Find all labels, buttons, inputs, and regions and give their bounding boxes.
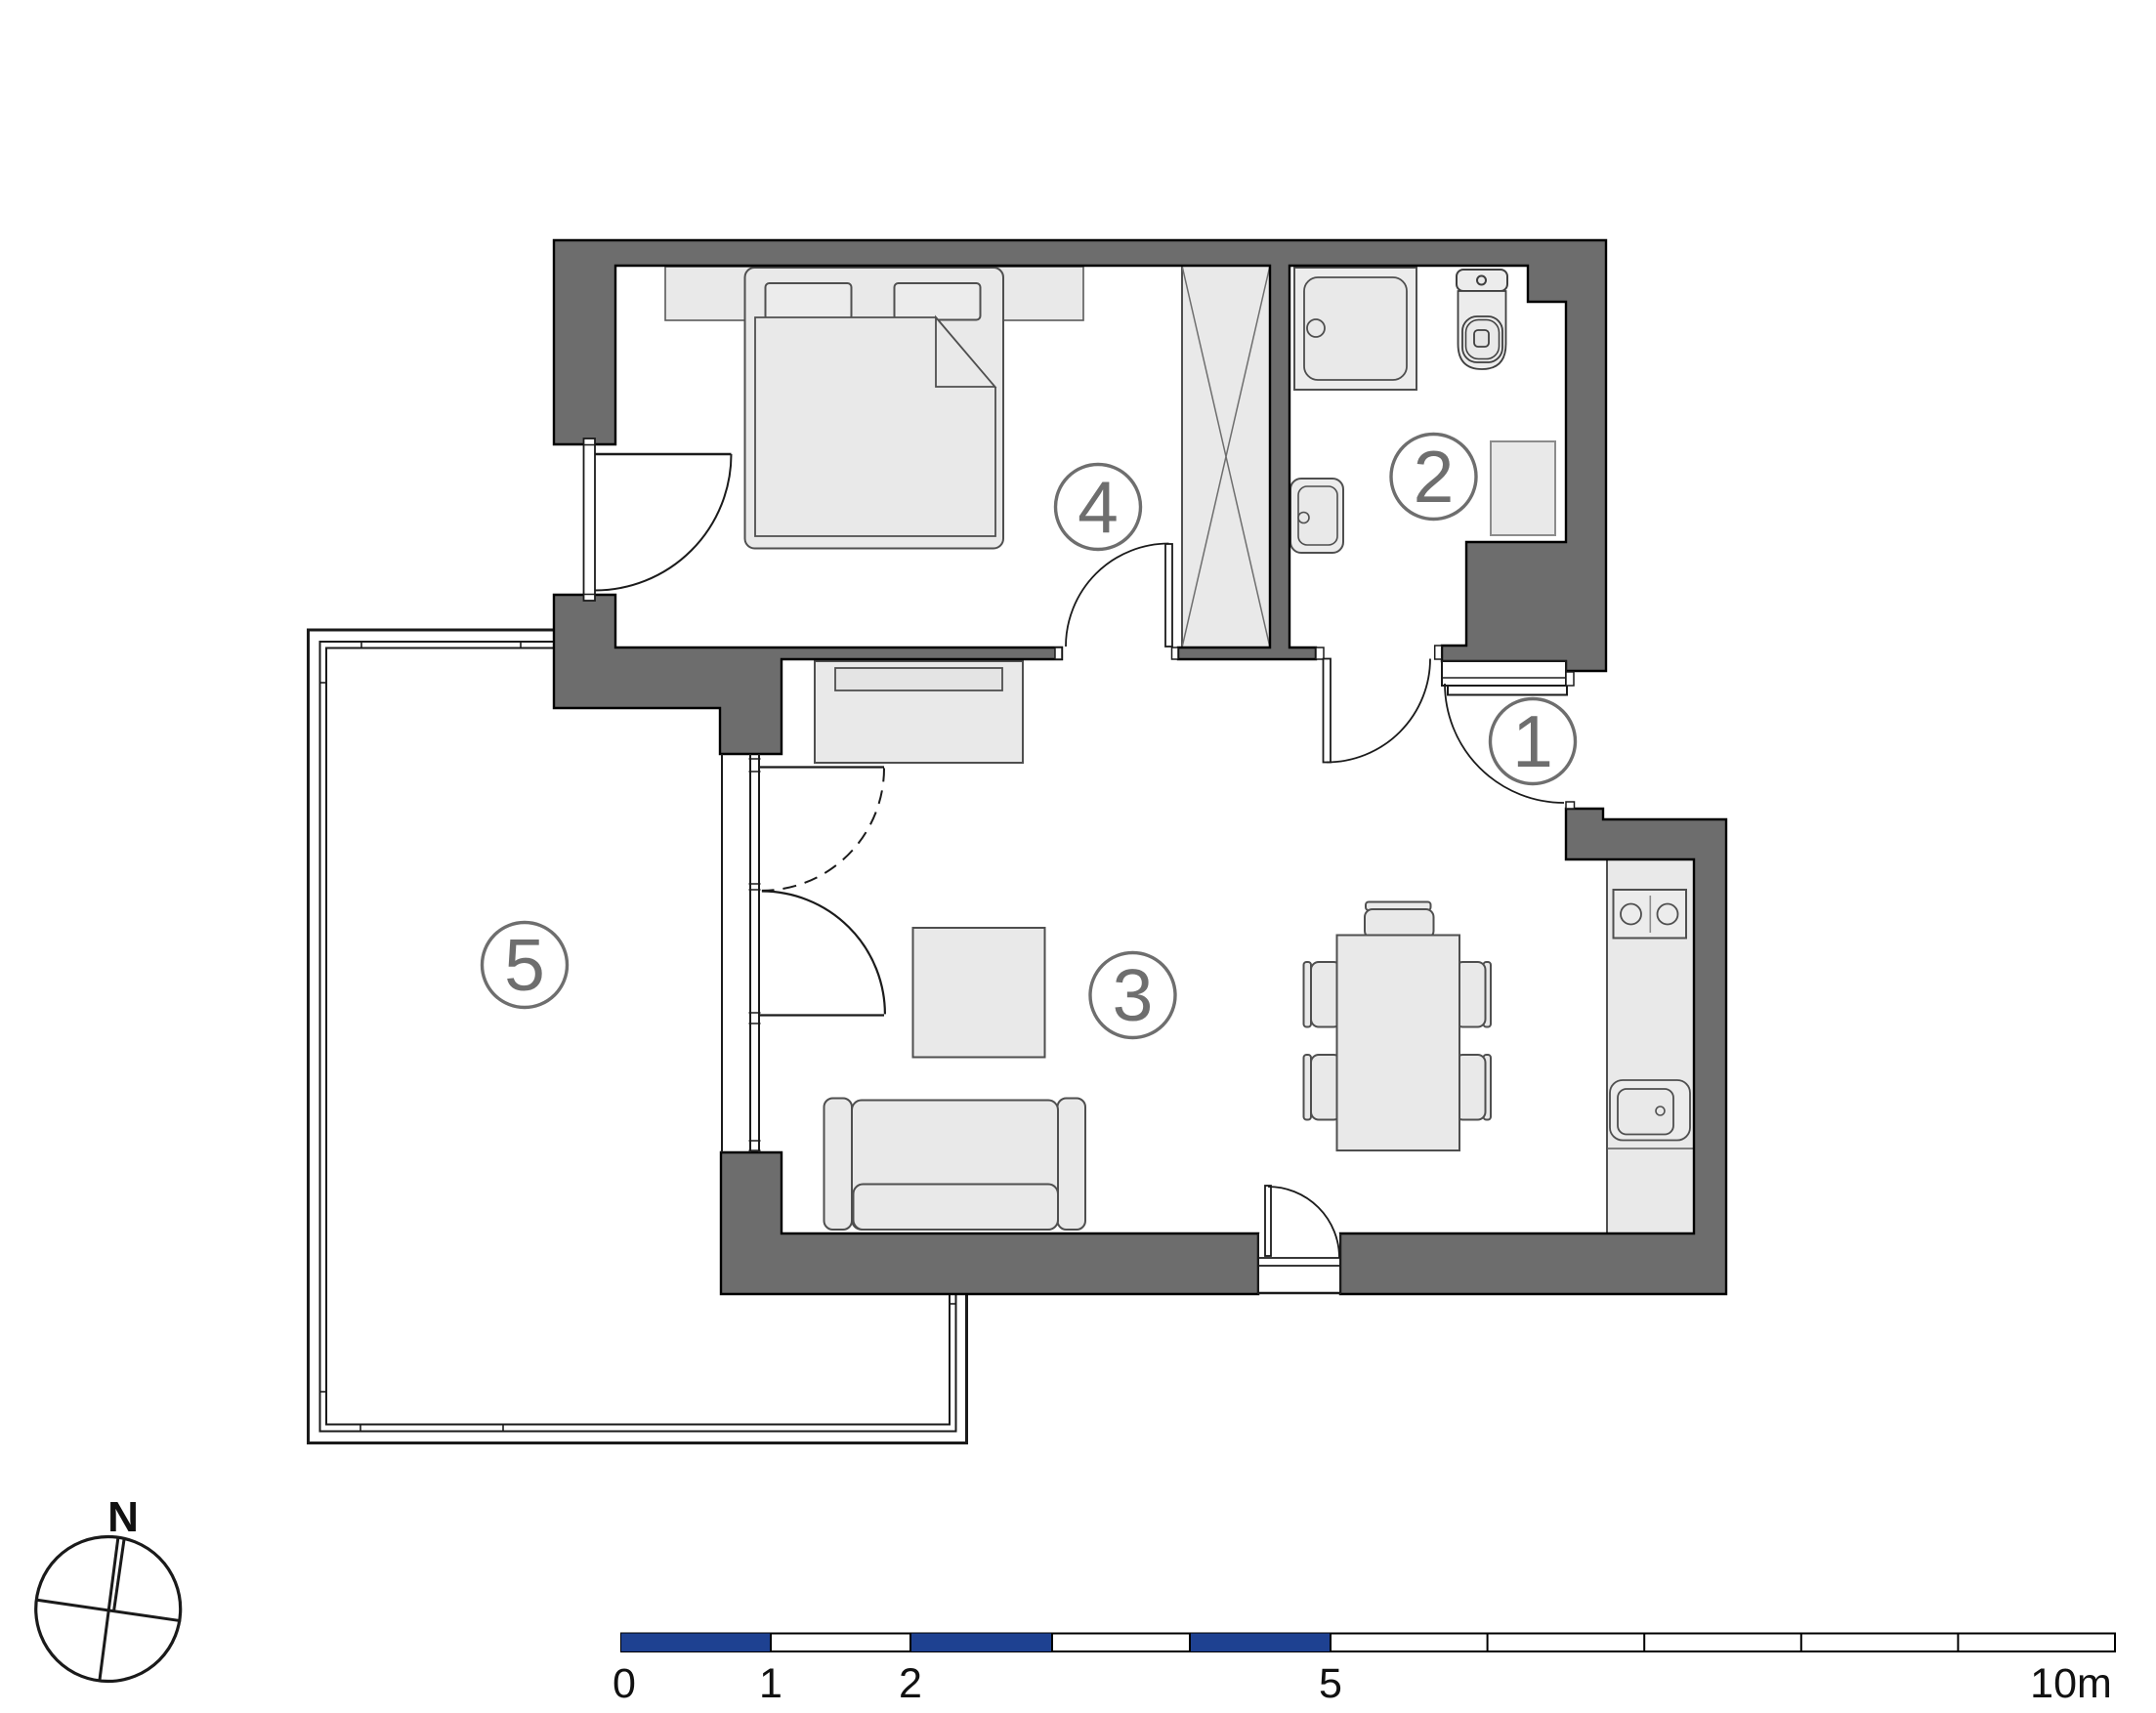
svg-text:0: 0 [613,1660,636,1707]
svg-text:N: N [107,1493,139,1541]
svg-text:10m: 10m [2030,1660,2112,1707]
svg-text:2: 2 [1414,436,1455,518]
svg-text:1: 1 [1512,700,1553,782]
svg-text:5: 5 [1319,1660,1342,1707]
svg-text:1: 1 [759,1660,782,1707]
svg-text:5: 5 [504,924,545,1006]
svg-text:3: 3 [1113,954,1154,1036]
svg-text:2: 2 [899,1660,922,1707]
svg-text:4: 4 [1078,466,1119,548]
